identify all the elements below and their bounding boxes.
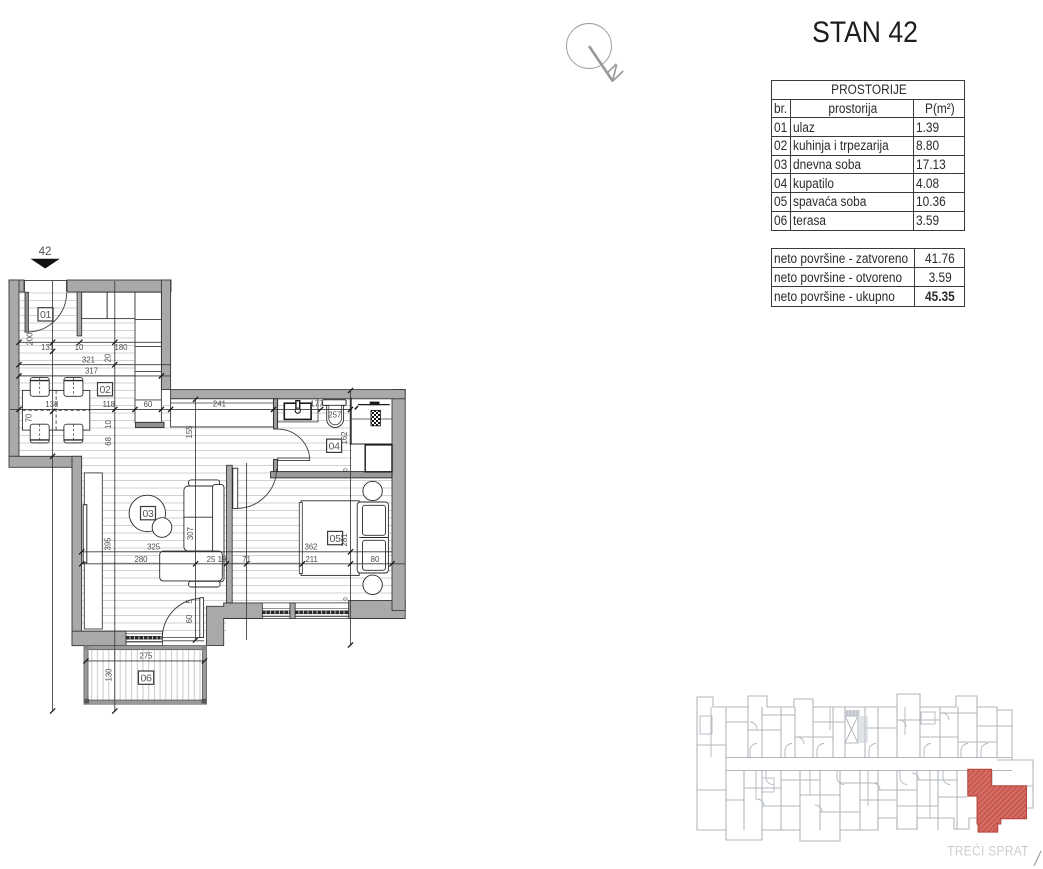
svg-text:TREĆI SPRAT: TREĆI SPRAT: [947, 843, 1028, 859]
